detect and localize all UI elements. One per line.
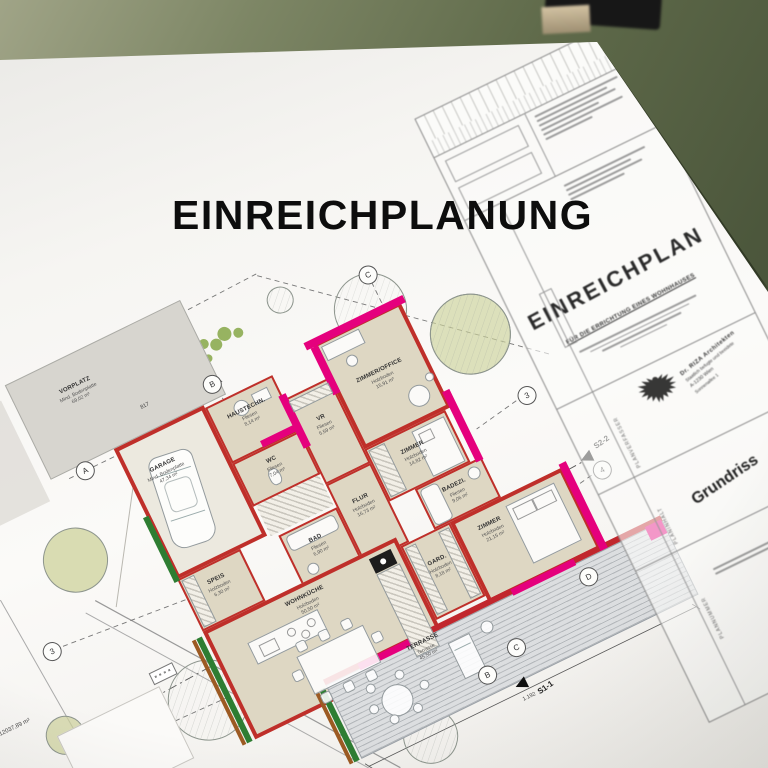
plan-content-value: Grundriss: [688, 451, 761, 509]
photo-of-plan: VORPLATZMind. Bodenplatte69,02 m² GARAGE…: [0, 0, 768, 768]
rotated-sheet: VORPLATZMind. Bodenplatte69,02 m² GARAGE…: [0, 0, 768, 768]
content-label: PLANINHALT: [644, 479, 680, 545]
author-label: PLANVERFASSER: [602, 394, 642, 469]
overlay-headline: EINREICHPLANUNG: [172, 192, 593, 239]
eagle-emblem: [631, 366, 686, 417]
plan-sheet-paper: VORPLATZMind. Bodenplatte69,02 m² GARAGE…: [0, 0, 768, 768]
stapler-metal: [541, 5, 590, 34]
